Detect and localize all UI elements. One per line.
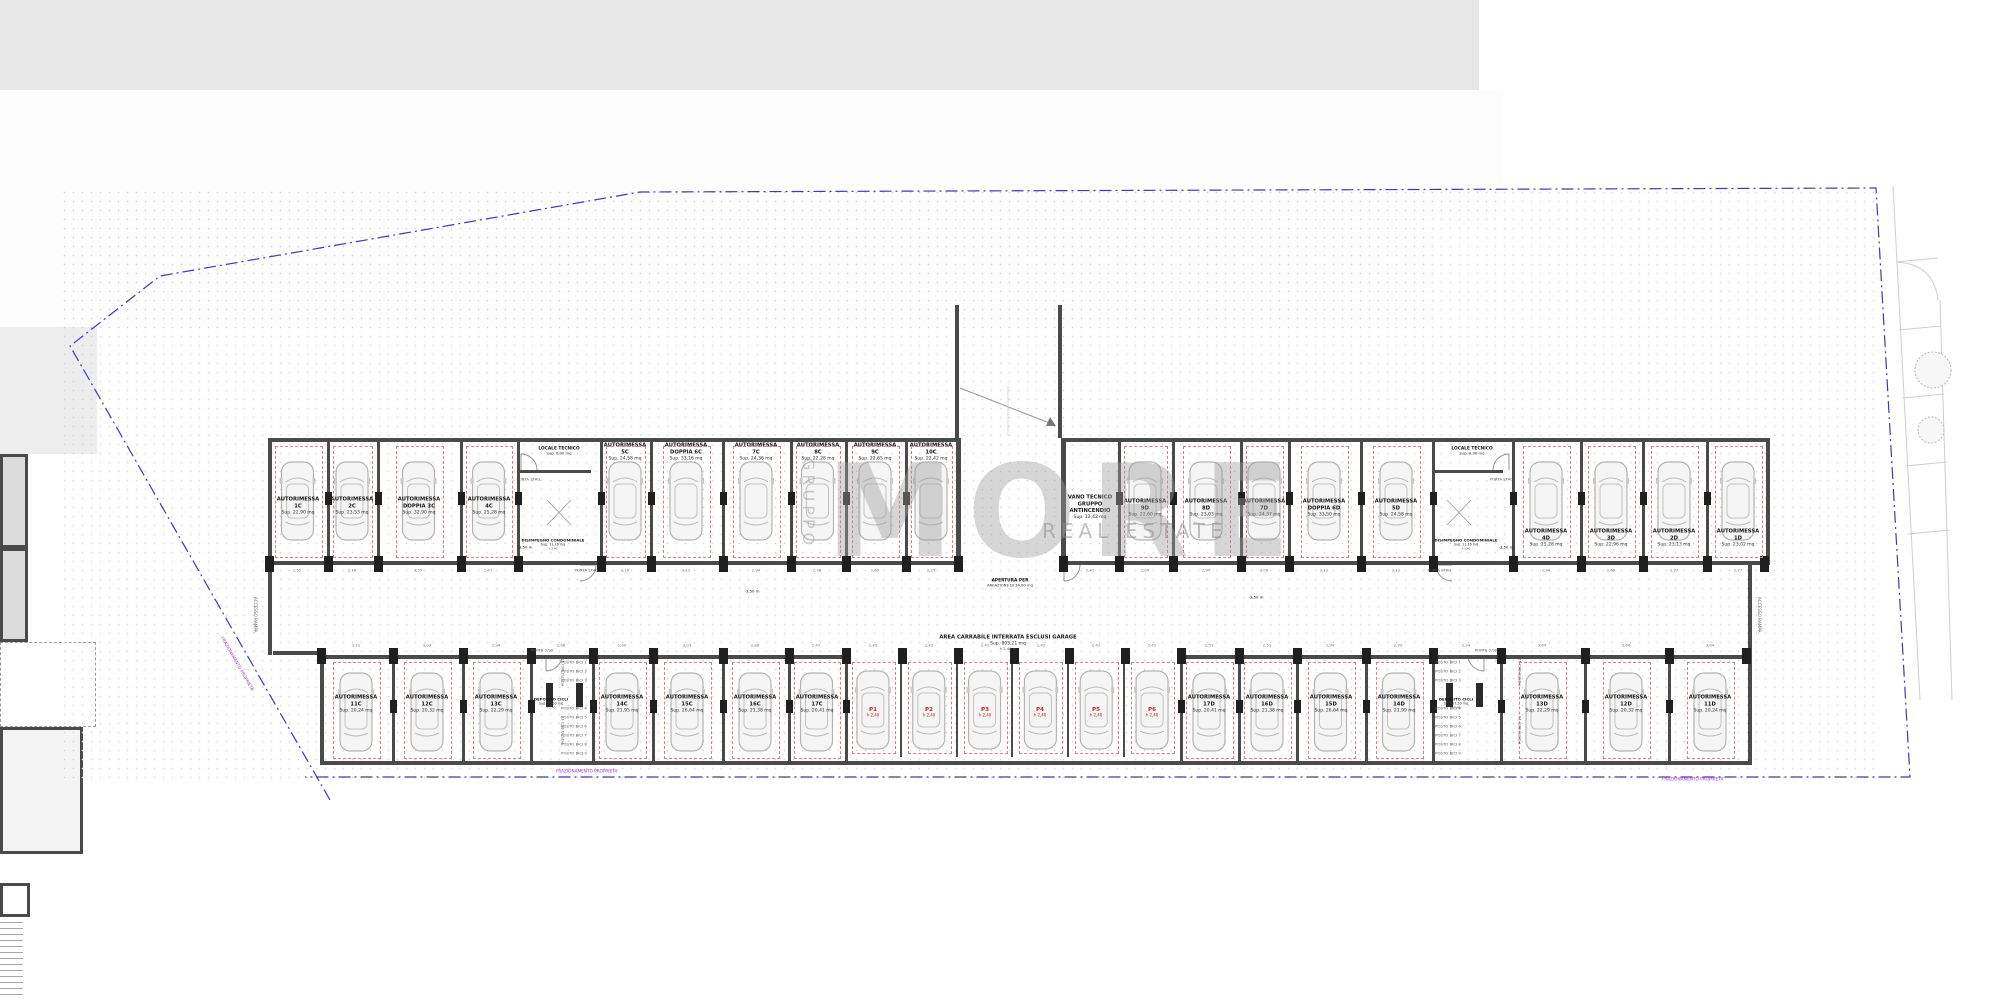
dim-top: 2,47 [484, 568, 493, 572]
stall-outline [275, 446, 323, 558]
pillar [1704, 492, 1711, 505]
dim-top: 3,12 [1392, 568, 1401, 572]
bike-stall-label: POSTO BICI 3 [1435, 678, 1461, 682]
dim-bottom: 2,42 [869, 643, 878, 647]
pillar [590, 700, 597, 713]
bike-stall-label-side: POSTO BICI 11 [1518, 716, 1522, 744]
dim-bottom: 3,64 [1622, 643, 1631, 647]
aisle-pillar-bottom [898, 648, 907, 664]
dim-top: 3,59 [414, 568, 423, 572]
dim-top: 2,16 [348, 568, 357, 572]
dim-bottom: 2,47 [812, 643, 821, 647]
pillar [1363, 700, 1370, 713]
pillar [720, 492, 727, 505]
dim-top: 2,38 [813, 568, 822, 572]
stall-outline [1301, 446, 1349, 558]
spot-label-P1: P1h 2,40 [867, 706, 880, 718]
pillar [1510, 492, 1517, 505]
bike-stall-label: POSTO BICI 8 [1435, 742, 1461, 746]
pillar [1178, 700, 1185, 713]
aisle-pillar-bottom [389, 648, 398, 664]
door-label-right: PORTA STAG. [1490, 477, 1515, 481]
site-road-line [1896, 262, 1938, 300]
level-mark-left: -3,50 m [745, 589, 760, 593]
pillar [1236, 700, 1243, 713]
watermark-gruppo: GRUPPO [799, 458, 818, 549]
stall-outline [732, 662, 780, 759]
drive-aisle [0, 0, 1479, 90]
bike-stall-label: POSTO BICI 2 [561, 669, 587, 673]
stall-outline [333, 662, 381, 759]
bike-stall-label: POSTO BICI 7 [1435, 733, 1461, 737]
stall-outline [466, 446, 513, 558]
aisle-pillar-top [1577, 556, 1586, 572]
bike-stall-label: POSTO BICI 5 [561, 715, 587, 719]
dim-top: 2,55 [293, 568, 302, 572]
drive-area-label: AREA CARRABILE INTERRATA ESCLUSI GARAGE … [939, 634, 1076, 652]
watermark-real-estate: REAL ESTATE [1042, 519, 1228, 543]
dim-top: 2,77 [1734, 568, 1743, 572]
bike-stall-label-side: POSTO BICI 10 [1518, 658, 1522, 686]
pillar [1582, 700, 1589, 713]
aisle-pillar-top [265, 556, 274, 572]
stall-outline [396, 446, 444, 558]
pillar [786, 700, 793, 713]
stall-outline [1244, 662, 1292, 759]
pillar [648, 492, 655, 505]
pillar [458, 492, 465, 505]
dim-bottom: 2,68 [557, 643, 566, 647]
pillar [1666, 700, 1673, 713]
pillar [1498, 700, 1505, 713]
spot-partition [900, 659, 902, 757]
site-road-line [1908, 530, 1950, 534]
stall-outline [606, 446, 646, 558]
hall-label-right: DISIMPEGNO CONDOMINIALESup. 11,16 mqh 2,… [1435, 538, 1498, 551]
spot-partition [1123, 659, 1125, 757]
stall-outline [664, 662, 712, 759]
bike-stall-label: POSTO BICI 3 [561, 678, 587, 682]
dim-top: 2,16 [621, 568, 630, 572]
aisle-pillar-bottom [1293, 648, 1302, 664]
tech-room-label-left: LOCALE TECNICOSup. 6,90 mq [538, 446, 579, 456]
stall-outline [599, 662, 647, 759]
wall-6 [320, 655, 845, 659]
ramp-block-left [0, 454, 28, 548]
aisle-pillar-bottom [317, 648, 326, 664]
stall-outline [1519, 662, 1567, 759]
wall-10 [1748, 655, 1752, 765]
dim-top: 3,12 [1320, 568, 1329, 572]
bike-stall-label: POSTO BICI 5 [1435, 715, 1461, 719]
dim-top: 2,77 [1670, 568, 1679, 572]
aisle-pillar-bottom [459, 648, 468, 664]
stall-outline [1523, 446, 1571, 558]
stall-outline [794, 662, 841, 759]
bike-stall-label: POSTO BICI 1 [561, 660, 587, 664]
dim-top: 3,12 [682, 568, 691, 572]
aisle-pillar-top [787, 556, 796, 572]
aisle-pillar-top [647, 556, 656, 572]
site-road-line [1902, 394, 1944, 398]
bike-rack [576, 683, 583, 707]
pillar [515, 492, 522, 505]
wall-5 [1766, 438, 1770, 565]
pillar [390, 700, 397, 713]
spot-partition [1011, 659, 1013, 757]
aisle-pillar-top [374, 556, 383, 572]
ramp-right-label: ACCESSO RAMPA [1757, 597, 1762, 633]
spot-label-P3: P3h 2,40 [978, 706, 991, 718]
wall-11 [273, 651, 320, 655]
aisle-pillar-top [1509, 556, 1518, 572]
tech-room-wall [520, 470, 591, 473]
bike-stall-label-side: POSTO BICI 11 [561, 716, 565, 744]
pillar [375, 492, 382, 505]
stall-outline [1603, 662, 1651, 759]
spot-partition [1067, 659, 1069, 757]
tree [1918, 417, 1944, 443]
site-road-line [1893, 186, 1920, 700]
stair-level-left: -3,50 m [518, 545, 533, 549]
tech-room-left [0, 854, 71, 883]
dim-bottom: 3,64 [1538, 643, 1547, 647]
floor-plan-canvas: GRUPPO MORE REAL ESTATE APERTURA PER ARE… [0, 0, 2000, 1000]
spot-label-P2: P2h 2,40 [922, 706, 935, 718]
spot-partition [956, 659, 958, 757]
dim-top: 2,68 [1607, 568, 1616, 572]
wall-13 [1748, 565, 1752, 655]
stair-level-right: -3,50 m [1499, 545, 1514, 549]
spot-label-P4: P4h 2,40 [1034, 706, 1047, 718]
dim-bottom: 2,51 [1263, 643, 1272, 647]
tech-room-label-right: LOCALE TECNICOSup. 8,90 mq [1451, 446, 1492, 456]
aisle-pillar-bottom [589, 648, 598, 664]
bike-stall-label: POSTO BICI 1 [1435, 660, 1461, 664]
stall-outline [663, 446, 711, 558]
aisle-pillar-bottom [1742, 648, 1751, 664]
stair-flight-left [0, 917, 23, 1000]
dim-bottom: 2,86 [751, 643, 760, 647]
dim-bottom: 2,42 [1148, 643, 1157, 647]
tech-room-wall [1435, 470, 1503, 473]
aisle-pillar-bottom [785, 648, 794, 664]
door-label-left: PORTA STAG. [575, 568, 600, 572]
aisle-pillar-top [719, 556, 728, 572]
stall-outline [404, 662, 452, 759]
dim-bottom: 2,94 [492, 643, 501, 647]
door-label-right: PORTA STAG. [1428, 568, 1453, 572]
stall-outline [333, 446, 373, 558]
wall-14 [955, 305, 959, 438]
ramp-left-label: ACCESSO RAMPA [253, 597, 258, 633]
dim-bottom: 2,51 [1205, 643, 1214, 647]
bike-room-label-right: DEPOSITO CICLISup. 27,50 mqh 2,40 [1439, 697, 1473, 710]
pillar [1294, 700, 1301, 713]
pillar [1640, 492, 1647, 505]
dim-bottom: 2,42 [925, 643, 934, 647]
pillar [598, 492, 605, 505]
pillar [1430, 492, 1437, 505]
pillar [460, 700, 467, 713]
dim-bottom: 3,64 [1706, 643, 1715, 647]
aisle-pillar-bottom [1235, 648, 1244, 664]
site-road-line [1896, 258, 1938, 262]
stall-outline [1715, 446, 1763, 558]
aisle-pillar-bottom [1362, 648, 1371, 664]
level-mark-right: -3,50 m [1249, 595, 1264, 599]
aisle-pillar-top [1703, 556, 1712, 572]
bike-stall-label-side: POSTO BICI 10 [561, 658, 565, 686]
stall-outline [1687, 662, 1735, 759]
dim-top: 2,94 [752, 568, 761, 572]
pillar [720, 700, 727, 713]
bike-stall-label: POSTO BICI 9 [1435, 751, 1461, 755]
bike-stall-label: POSTO BICI 6 [1435, 724, 1461, 728]
pillar [788, 492, 795, 505]
dim-bottom: 2,42 [1092, 643, 1101, 647]
dim-top: 2,94 [1542, 568, 1551, 572]
aisle-pillar-bottom [649, 648, 658, 664]
spot-label-P6: P6h 2,40 [1146, 706, 1159, 718]
ramp-block-right [0, 548, 28, 642]
aisle-pillar-top [1357, 556, 1366, 572]
stall-outline [1308, 662, 1356, 759]
bike-stall-label: POSTO BICI 9 [561, 751, 587, 755]
bike-stall-label: POSTO BICI 6 [561, 724, 587, 728]
wall-4 [268, 438, 272, 565]
aisle-pillar-top [1760, 556, 1769, 572]
aisle-pillar-bottom [1581, 648, 1590, 664]
aisle-pillar-top [1639, 556, 1648, 572]
aisle-pillar-bottom [1121, 648, 1130, 664]
aisle-pillar-bottom [842, 648, 851, 664]
bike-stall-label: POSTO BICI 2 [1435, 669, 1461, 673]
aisle-pillar-bottom [1177, 648, 1186, 664]
property-note-right: FRAZIONAMENTO PROPRIETA' [1662, 777, 1724, 782]
elevator-left [0, 883, 30, 917]
dim-bottom: 2,60 [618, 643, 627, 647]
bike-door-label: PORTA 0,90 [1475, 648, 1497, 652]
wall-15 [1058, 305, 1062, 438]
bike-door-label: PORTA 0,90 [531, 648, 553, 652]
stall-outline [1651, 446, 1699, 558]
dim-bottom: 3,03 [683, 643, 692, 647]
dim-bottom: 2,94 [1462, 643, 1471, 647]
bike-rack [1476, 683, 1483, 707]
site-road-line [1905, 462, 1947, 466]
wall-12 [268, 565, 272, 655]
wall-9 [320, 655, 324, 765]
stall-outline [473, 662, 521, 759]
tree [1915, 352, 1951, 388]
pillar [650, 700, 657, 713]
property-note-bottom: FRAZIONAMENTO PROPRIETA' [556, 769, 618, 774]
pillar [1358, 492, 1365, 505]
dim-bottom: 2,99 [1326, 643, 1335, 647]
aisle-pillar-bottom [1665, 648, 1674, 664]
dim-bottom: 3,12 [352, 643, 361, 647]
stall-outline [1588, 446, 1636, 558]
stall-outline [733, 446, 781, 558]
aisle-pillar-top [457, 556, 466, 572]
spot-label-P5: P5h 2,40 [1090, 706, 1103, 718]
stall-outline [1376, 662, 1424, 759]
pillar [1578, 492, 1585, 505]
aisle-pillar-top [324, 556, 333, 572]
dim-bottom: 3,03 [423, 643, 432, 647]
aisle-pillar-top [514, 556, 523, 572]
bike-stall-label: POSTO BICI 7 [561, 733, 587, 737]
stall-outline [1186, 662, 1234, 759]
pillar [843, 700, 850, 713]
aisle-pillar-bottom [1497, 648, 1506, 664]
watermark-more: MORE [826, 438, 1226, 587]
door-label-left: PORTA STAG. [517, 477, 542, 481]
site-road-line [1940, 300, 1952, 700]
site-road-line [1899, 326, 1941, 330]
wall-8 [320, 761, 1752, 765]
aisle-pillar-bottom [719, 648, 728, 664]
stall-outline [1373, 446, 1421, 558]
bike-stall-label: POSTO BICI 8 [561, 742, 587, 746]
dim-bottom: 2,90 [1394, 643, 1403, 647]
bike-room-label-left: DEPOSITO CICLISup. 27,50 mqh 2,40 [534, 697, 568, 710]
